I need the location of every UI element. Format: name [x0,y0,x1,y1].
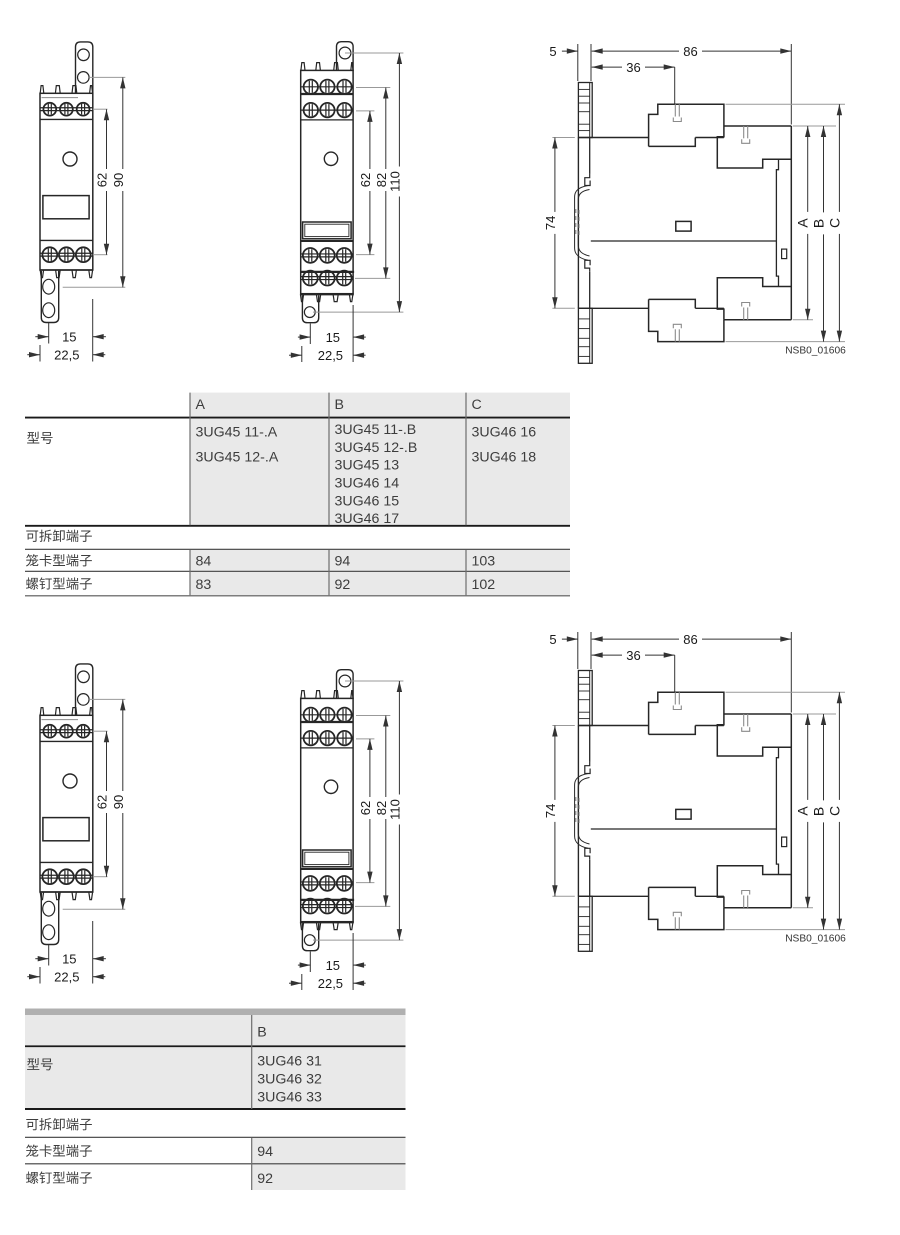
svg-text:94: 94 [257,1144,273,1160]
svg-text:22,5: 22,5 [54,348,79,363]
svg-text:36: 36 [626,60,640,75]
svg-text:62: 62 [358,801,373,815]
svg-text:102: 102 [472,577,496,593]
svg-text:3UG46 31: 3UG46 31 [257,1054,322,1070]
svg-text:86: 86 [683,44,697,59]
svg-text:C: C [826,218,842,228]
svg-text:A: A [795,806,811,816]
svg-text:3UG45 11-.B: 3UG45 11-.B [335,422,417,438]
svg-text:86: 86 [683,632,697,647]
svg-text:A: A [196,397,206,413]
svg-text:90: 90 [111,173,126,187]
svg-text:5: 5 [549,632,556,647]
svg-text:74: 74 [543,216,558,230]
svg-text:110: 110 [387,799,402,820]
svg-text:3UG46 32: 3UG46 32 [257,1071,322,1087]
svg-text:15: 15 [62,330,76,345]
svg-text:A: A [795,218,811,228]
svg-text:84: 84 [196,554,212,570]
svg-text:15: 15 [62,952,76,967]
svg-text:3UG46 15: 3UG46 15 [335,493,400,509]
svg-text:3UG45 13: 3UG45 13 [335,458,400,474]
svg-text:74: 74 [543,804,558,818]
svg-text:36: 36 [626,648,640,663]
svg-text:NSB0_01606: NSB0_01606 [785,934,846,945]
svg-text:3UG46 33: 3UG46 33 [257,1089,322,1105]
svg-text:110: 110 [387,171,402,192]
svg-text:3UG46 16: 3UG46 16 [472,425,537,441]
svg-text:92: 92 [335,577,351,593]
svg-text:62: 62 [95,795,110,809]
svg-text:B: B [257,1025,266,1041]
svg-text:15: 15 [326,958,340,973]
svg-text:C: C [826,806,842,816]
svg-text:B: B [811,807,827,816]
svg-text:15: 15 [326,330,340,345]
svg-text:62: 62 [358,173,373,187]
svg-text:B: B [811,219,827,228]
svg-text:3UG46 18: 3UG46 18 [472,449,537,465]
svg-text:NSB0_01606: NSB0_01606 [785,346,846,357]
svg-text:3UG45 12-.B: 3UG45 12-.B [335,440,418,456]
svg-text:90: 90 [111,795,126,809]
svg-text:83: 83 [196,577,212,593]
svg-text:5: 5 [549,44,556,59]
svg-text:3UG46 14: 3UG46 14 [335,475,400,491]
svg-text:22,5: 22,5 [318,976,343,991]
svg-text:B: B [335,397,344,413]
svg-text:3UG45 11-.A: 3UG45 11-.A [196,425,278,441]
svg-text:3UG45 12-.A: 3UG45 12-.A [196,449,279,465]
svg-text:62: 62 [95,173,110,187]
svg-text:92: 92 [257,1171,273,1187]
svg-text:22,5: 22,5 [318,348,343,363]
svg-text:3UG46 17: 3UG46 17 [335,511,400,527]
svg-text:94: 94 [335,554,351,570]
svg-text:C: C [472,397,482,413]
svg-text:22,5: 22,5 [54,970,79,985]
svg-text:103: 103 [472,554,496,570]
